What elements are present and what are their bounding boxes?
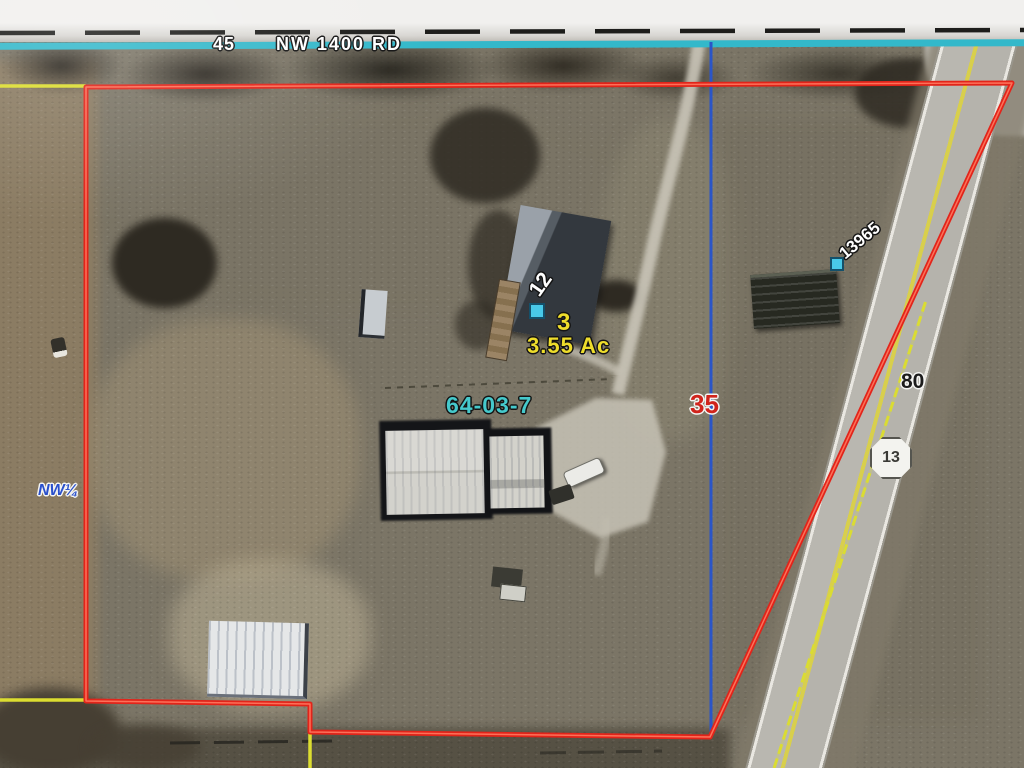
house-point-marker [529, 303, 545, 319]
aerial-parcel-map: 45 NW 1400 RD 12 3 3.55 Ac 64-03-7 35 13… [0, 0, 1024, 768]
section-dashed-line-bottom [170, 741, 332, 743]
quarter-section-label: NW¼ [38, 483, 78, 499]
road-name-label: NW 1400 RD [276, 35, 402, 53]
parcel-id-label: 64-03-7 [446, 394, 532, 417]
parcel-boundary [86, 83, 1012, 737]
address-point-marker [830, 257, 844, 271]
highway-shield-number: 13 [882, 449, 900, 467]
section-dashed-line-bottom2 [540, 751, 662, 753]
lot-number-label: 3 [557, 311, 570, 335]
acreage-label: 3.55 Ac [527, 335, 610, 357]
fence-line [385, 379, 612, 388]
parcel-boundary-highlight [86, 83, 1012, 737]
side-road-label: 80 [901, 371, 924, 392]
section-dashed-line-top [0, 30, 1024, 33]
parcel-lines-layer [0, 0, 1024, 768]
section-number-label: 35 [690, 391, 719, 417]
route-number-label: 45 [213, 35, 235, 53]
